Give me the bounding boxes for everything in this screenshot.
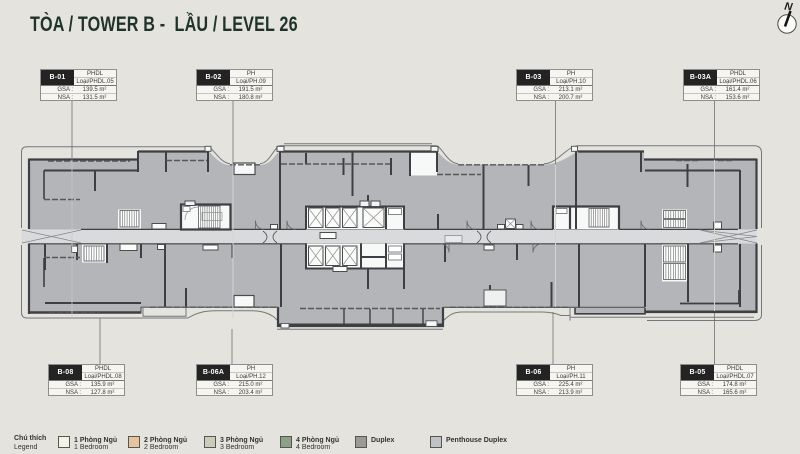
svg-text:N: N: [784, 1, 795, 14]
